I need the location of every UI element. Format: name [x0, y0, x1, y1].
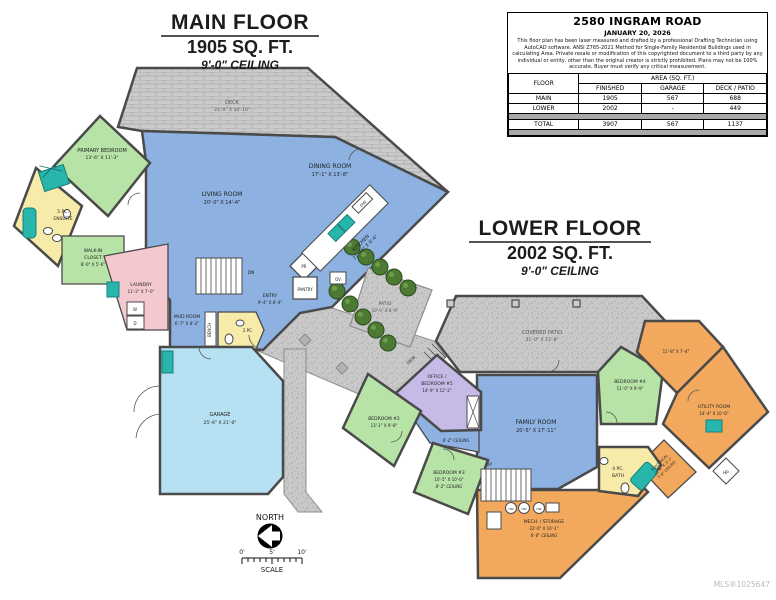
- bench-label: BENCH: [207, 323, 212, 337]
- patio-post: [512, 300, 519, 307]
- mech-dims: 22'-0" X 10'-1": [529, 526, 558, 531]
- tree: [355, 309, 371, 325]
- bedroom-door-swing: [128, 193, 140, 205]
- primary-dims: 13'-6" X 11'-3": [86, 155, 119, 161]
- entry-dims: 9'-4" X 8'-4": [258, 300, 282, 305]
- mech-label: MECH. / STORAGE: [524, 519, 565, 525]
- cell-floor: LOWER: [509, 103, 579, 113]
- lower-floor-ceiling: 9'-0" CEILING: [460, 264, 660, 278]
- patio-dims: 10'-0" X 8'-9": [372, 308, 399, 313]
- cell-floor: TOTAL: [509, 119, 579, 129]
- 2pc-label: 2 PC.: [243, 328, 253, 333]
- cell-deck-patio: 688: [704, 93, 767, 103]
- bath4-label1: 4 PC.: [612, 466, 624, 472]
- table-row: MAIN 1905 567 688: [509, 93, 767, 103]
- office-dims: 14'-9" X 12'-2": [422, 388, 451, 393]
- hw-label: HW: [521, 507, 526, 511]
- covered-patio-dims: 31'-0" X 13'-8": [526, 337, 559, 343]
- shower: [39, 164, 70, 191]
- scale-tick0: 0': [239, 549, 245, 556]
- dining-dims: 17'-1" X 13'-8": [312, 172, 349, 178]
- mech-ceiling: 6'-6" CEILING: [531, 533, 558, 538]
- primary-label: PRIMARY BEDROOM: [77, 148, 127, 154]
- scale-tick10: 10': [297, 549, 307, 556]
- scale-label: SCALE: [261, 566, 283, 574]
- family-dims: 20'-5" X 17'-11": [516, 428, 556, 434]
- separator-row: [509, 129, 767, 135]
- bedroom4-dims: 11'-0" X 9'-9": [617, 386, 644, 391]
- header-floor: FLOOR: [509, 73, 579, 93]
- lower-floor-title-block: LOWER FLOOR 2002 SQ. FT. 9'-0" CEILING: [460, 218, 660, 278]
- hw-label: HW: [536, 507, 541, 511]
- sink: [600, 458, 608, 465]
- garage-door-swing: [134, 386, 160, 412]
- laundry-sink: [107, 282, 119, 297]
- deck-dims: 21'-9" X 14'-10": [214, 107, 250, 113]
- header-area-group: AREA (SQ. FT.): [579, 73, 767, 83]
- info-table-box: 2580 INGRAM ROAD JANUARY 20, 2026 This f…: [507, 12, 768, 137]
- washer-label: W: [133, 307, 137, 312]
- cell-finished: 3907: [579, 119, 642, 129]
- patio-label: PATIO: [379, 301, 392, 307]
- bathtub: [23, 208, 36, 238]
- compass-group: NORTH 0' 5' 10' SCALE: [239, 513, 307, 574]
- cell-garage: 567: [641, 119, 704, 129]
- garage-dims: 25'-6" X 21'-0": [204, 420, 237, 426]
- table-row: LOWER 2002 - 449: [509, 103, 767, 113]
- utility-dims: 14'-4" X 10'-6": [699, 411, 728, 416]
- garage-label: GARAGE: [210, 412, 231, 418]
- office-label1: OFFICE /: [428, 374, 447, 380]
- lower-floor-title: LOWER FLOOR: [469, 218, 652, 243]
- bedroom3-dims: 10'-5" X 10'-0": [434, 477, 463, 482]
- bedroom3-label: BEDROOM #3: [433, 470, 465, 476]
- cell-floor: MAIN: [509, 93, 579, 103]
- ensuite-label1: 5 PC.: [57, 209, 69, 215]
- scale-tick5: 5': [269, 549, 275, 556]
- separator-cell: [509, 129, 767, 135]
- cell-finished: 2002: [579, 103, 642, 113]
- ensuite-label2: ENSUITE: [53, 216, 72, 222]
- north-label: NORTH: [256, 513, 284, 522]
- bench-label-group: BENCH: [207, 323, 212, 337]
- closet-label2: CLOSET: [84, 255, 102, 261]
- main-floor-ceiling: 9'-0" CEILING: [140, 58, 340, 72]
- closet-label1: WALK-IN: [84, 248, 103, 254]
- main-floor-area: 1905 SQ. FT.: [140, 38, 340, 58]
- bedroom2-dims: 13'-1" X 9'-8": [371, 423, 398, 428]
- stairs-dn-label: DN: [248, 270, 255, 276]
- scale-bar: [242, 558, 302, 564]
- bedroom2-label: BEDROOM #2: [368, 416, 400, 422]
- sink: [44, 228, 53, 235]
- laundry-dims: 11'-2" X 7'-0": [128, 289, 155, 294]
- deck-label: DECK: [225, 100, 240, 106]
- disclaimer-text: This floor plan has been laser measured …: [508, 38, 767, 71]
- room-2pc-bath: [218, 312, 264, 349]
- patio-post: [573, 300, 580, 307]
- cell-finished: 1905: [579, 93, 642, 103]
- laundry-label: LAUNDRY: [130, 282, 152, 288]
- garage-door-swing: [136, 414, 160, 438]
- tree: [329, 283, 345, 299]
- tree: [380, 335, 396, 351]
- lower-floor-area: 2002 SQ. FT.: [460, 244, 660, 264]
- mech-equipment: [546, 503, 559, 512]
- living-dims: 20'-0" X 14'-4": [204, 200, 241, 206]
- header-finished: FINISHED: [579, 83, 642, 93]
- tree: [342, 296, 358, 312]
- stairs-up-label: UP: [486, 462, 492, 468]
- patio-post: [447, 300, 454, 307]
- bath4-label2: BATH: [612, 473, 624, 479]
- mls-number: MLS®1025647: [690, 580, 770, 589]
- cell-deck-patio: 449: [704, 103, 767, 113]
- dryer-label: D: [133, 321, 136, 326]
- sink: [236, 320, 244, 326]
- entry-label: ENTRY: [263, 293, 278, 299]
- utility-label: UTILITY ROOM: [698, 404, 730, 410]
- address-title: 2580 INGRAM ROAD: [508, 15, 767, 28]
- mudroom-label: MUD ROOM: [174, 314, 200, 320]
- main-floor-title: MAIN FLOOR: [161, 12, 319, 37]
- oven-label: OV: [335, 277, 341, 282]
- covered-patio-label: COVERED PATIO: [522, 330, 562, 336]
- mudroom-dims: 6'-7" X 8'-2": [175, 321, 199, 326]
- garage-fixture: [162, 351, 173, 373]
- bedroom4-label: BEDROOM #4: [614, 379, 646, 385]
- main-floor-title-block: MAIN FLOOR 1905 SQ. FT. 9'-0" CEILING: [140, 12, 340, 72]
- office-label2: BEDROOM #5: [421, 381, 453, 387]
- dining-label: DINING ROOM: [309, 163, 351, 170]
- toilet: [225, 334, 233, 344]
- stairs-main: [196, 258, 242, 294]
- tree: [368, 322, 384, 338]
- hall-ceiling-label: 8'-2" CEILING: [443, 438, 470, 443]
- toilet: [621, 483, 629, 493]
- cell-garage: 567: [641, 93, 704, 103]
- utility-tank: [706, 420, 722, 432]
- pantry-label: PANTRY: [297, 287, 313, 292]
- family-label: FAMILY ROOM: [516, 419, 557, 426]
- tree: [372, 259, 388, 275]
- closet-dims: 8'-0" X 5'-6": [81, 262, 105, 267]
- cell-deck-patio: 1137: [704, 119, 767, 129]
- floor-plan-page: DW DECK 21'-9" X 14'-10" LIVING ROOM 20'…: [0, 0, 776, 600]
- bedroom3-ceiling: 8'-2" CEILING: [436, 484, 463, 489]
- sink: [53, 235, 62, 242]
- powder-label: PR: [301, 264, 306, 269]
- mech-equipment: [487, 512, 501, 529]
- heat-pump-label: HP: [723, 470, 729, 475]
- area-table: FLOOR AREA (SQ. FT.) FINISHED GARAGE DEC…: [508, 73, 767, 136]
- tree: [386, 269, 402, 285]
- hw-label: HW: [508, 507, 513, 511]
- tree: [400, 280, 416, 296]
- upper-room-dims: 11'-8" X 7'-4": [663, 349, 690, 354]
- living-label: LIVING ROOM: [202, 191, 243, 198]
- plan-date: JANUARY 20, 2026: [508, 29, 767, 37]
- header-deck-patio: DECK / PATIO: [704, 83, 767, 93]
- table-row: TOTAL 3907 567 1137: [509, 119, 767, 129]
- header-garage: GARAGE: [641, 83, 704, 93]
- cell-garage: -: [641, 103, 704, 113]
